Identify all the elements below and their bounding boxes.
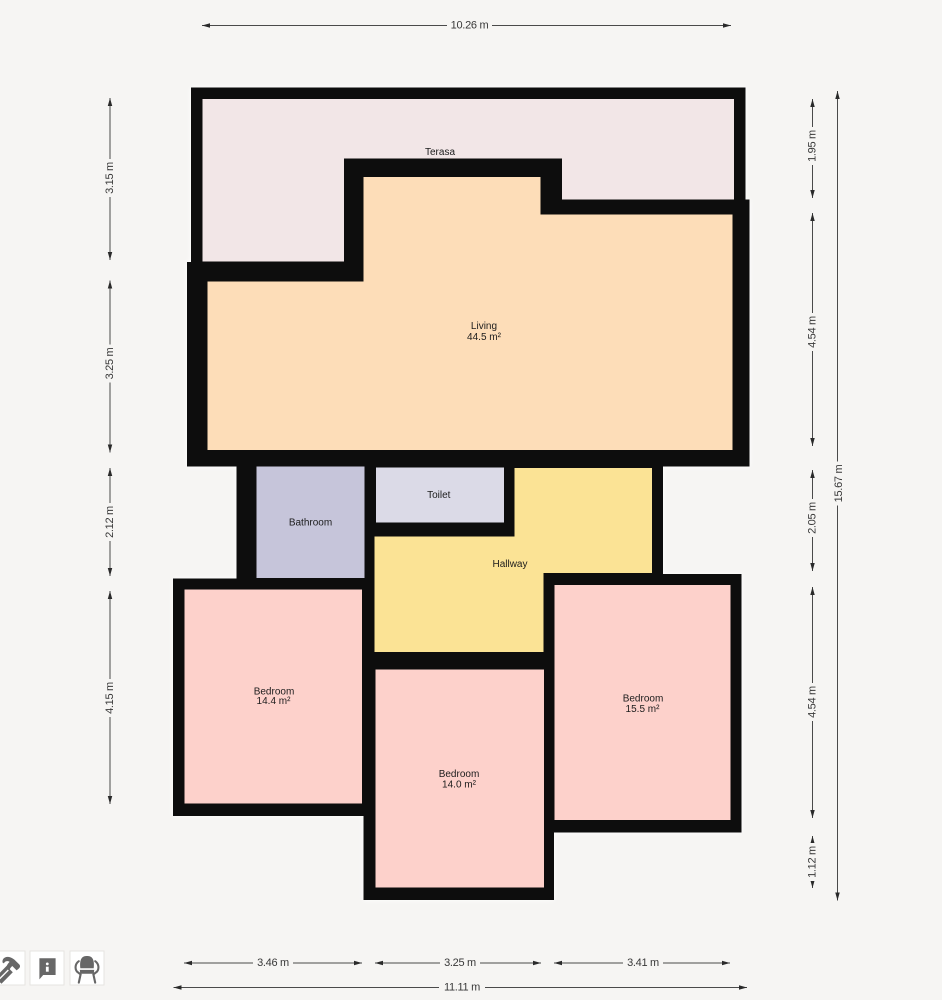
svg-text:15.67 m: 15.67 m bbox=[833, 465, 845, 503]
svg-text:44.5 m²: 44.5 m² bbox=[467, 332, 502, 343]
svg-text:1.95 m: 1.95 m bbox=[807, 130, 819, 162]
svg-text:Toilet: Toilet bbox=[427, 490, 451, 501]
svg-text:4.54 m: 4.54 m bbox=[807, 686, 819, 718]
svg-text:2.12 m: 2.12 m bbox=[104, 506, 116, 538]
svg-text:Bathroom: Bathroom bbox=[289, 518, 332, 529]
svg-text:Hallway: Hallway bbox=[492, 559, 527, 570]
svg-text:1.12 m: 1.12 m bbox=[807, 846, 819, 878]
svg-text:Terasa: Terasa bbox=[425, 147, 455, 158]
svg-text:Bedroom: Bedroom bbox=[623, 694, 664, 705]
svg-text:14.4 m²: 14.4 m² bbox=[257, 696, 292, 707]
svg-text:Bedroom: Bedroom bbox=[439, 769, 480, 780]
svg-text:10.26 m: 10.26 m bbox=[451, 20, 489, 32]
svg-text:3.15 m: 3.15 m bbox=[104, 162, 116, 194]
svg-text:11.11 m: 11.11 m bbox=[444, 982, 480, 994]
svg-text:15.5 m²: 15.5 m² bbox=[626, 704, 661, 715]
svg-text:Living: Living bbox=[471, 321, 497, 332]
svg-text:3.25 m: 3.25 m bbox=[104, 347, 116, 379]
svg-text:3.25 m: 3.25 m bbox=[444, 957, 476, 969]
svg-text:4.15 m: 4.15 m bbox=[104, 682, 116, 714]
svg-text:2.05 m: 2.05 m bbox=[807, 502, 819, 534]
svg-text:3.46 m: 3.46 m bbox=[257, 957, 289, 969]
svg-text:14.0 m²: 14.0 m² bbox=[442, 780, 477, 791]
svg-text:4.54 m: 4.54 m bbox=[807, 316, 819, 348]
svg-text:3.41 m: 3.41 m bbox=[627, 957, 659, 969]
